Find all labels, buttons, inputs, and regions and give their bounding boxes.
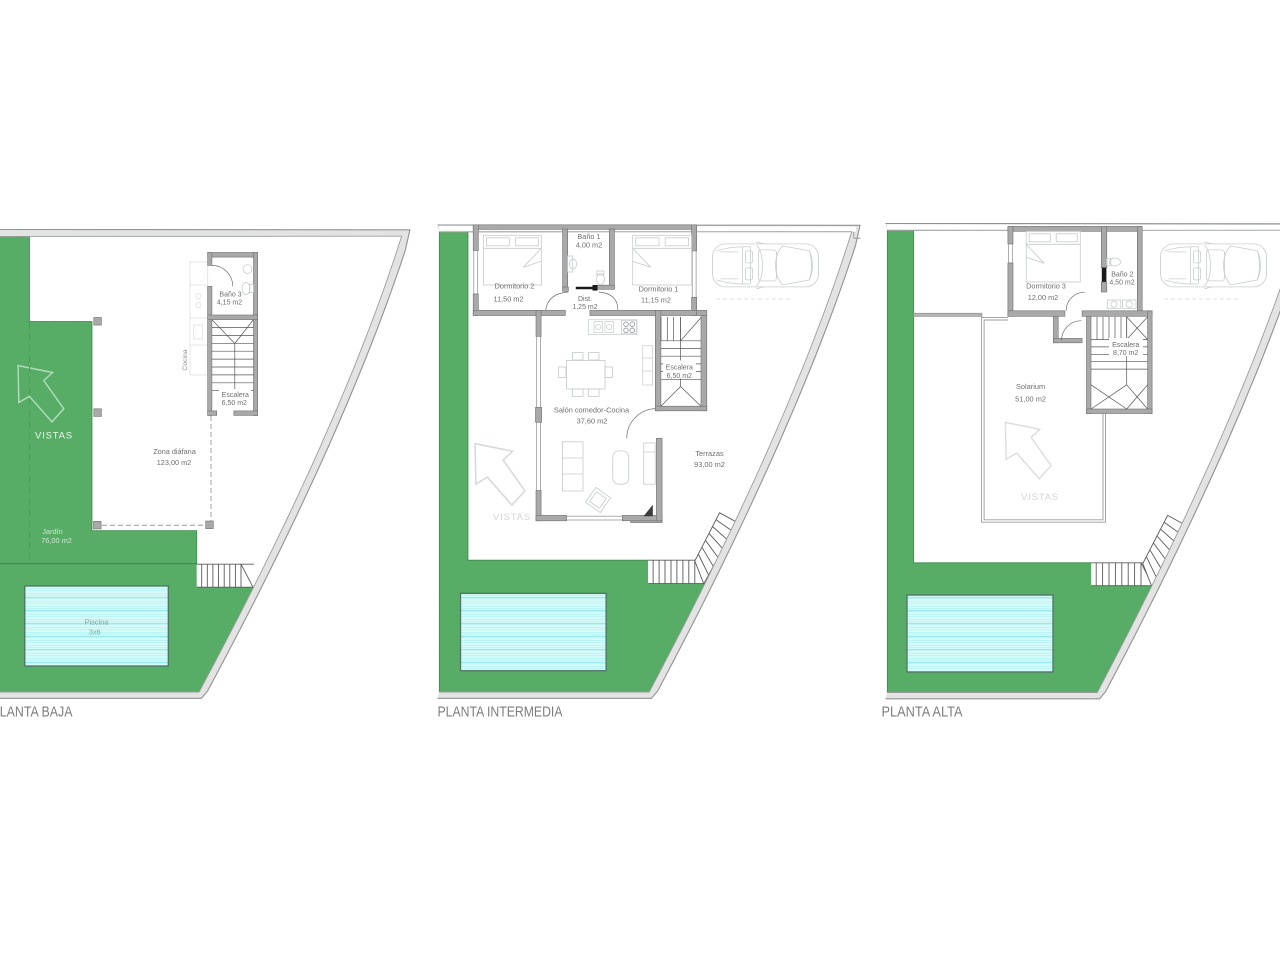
svg-text:37,60 m2: 37,60 m2 bbox=[577, 417, 608, 426]
svg-text:4,50 m2: 4,50 m2 bbox=[1109, 279, 1134, 286]
svg-text:Baño 1: Baño 1 bbox=[577, 232, 600, 241]
svg-text:Dormitorio 1: Dormitorio 1 bbox=[639, 285, 679, 294]
svg-text:11,50 m2: 11,50 m2 bbox=[494, 295, 524, 304]
svg-text:Piscina: Piscina bbox=[85, 618, 110, 627]
svg-text:6,50 m2: 6,50 m2 bbox=[667, 373, 692, 380]
svg-text:3x6: 3x6 bbox=[89, 627, 101, 636]
svg-text:123,00 m2: 123,00 m2 bbox=[157, 458, 191, 467]
svg-text:76,00 m2: 76,00 m2 bbox=[41, 536, 72, 545]
svg-text:Terrazas: Terrazas bbox=[695, 449, 724, 458]
svg-text:12,00 m2: 12,00 m2 bbox=[1028, 293, 1058, 302]
svg-text:8,70 m2: 8,70 m2 bbox=[1113, 350, 1138, 357]
svg-text:Jardín: Jardín bbox=[42, 527, 63, 536]
svg-text:VISTAS: VISTAS bbox=[1021, 492, 1059, 503]
svg-text:VISTAS: VISTAS bbox=[493, 512, 531, 523]
svg-text:Escalera: Escalera bbox=[1112, 342, 1139, 349]
svg-text:PLANTA ALTA: PLANTA ALTA bbox=[882, 704, 963, 721]
svg-text:Escalera: Escalera bbox=[666, 365, 693, 372]
svg-text:11,15 m2: 11,15 m2 bbox=[641, 296, 671, 305]
svg-text:4,15 m2: 4,15 m2 bbox=[217, 300, 242, 307]
svg-text:Cocina: Cocina bbox=[182, 349, 189, 370]
svg-text:Baño 2: Baño 2 bbox=[1111, 271, 1133, 278]
svg-text:Baño 3: Baño 3 bbox=[219, 291, 241, 298]
svg-text:Dormitorio 2: Dormitorio 2 bbox=[495, 282, 535, 291]
svg-text:1,25 m2: 1,25 m2 bbox=[572, 304, 597, 311]
svg-text:93,00 m2: 93,00 m2 bbox=[694, 460, 725, 469]
svg-text:Dormitorio 3: Dormitorio 3 bbox=[1026, 281, 1066, 290]
svg-text:Escalera: Escalera bbox=[222, 392, 249, 399]
svg-text:6,50 m2: 6,50 m2 bbox=[222, 400, 247, 407]
svg-text:PLANTA INTERMEDIA: PLANTA INTERMEDIA bbox=[438, 704, 563, 721]
svg-text:Solarium: Solarium bbox=[1016, 382, 1045, 391]
svg-text:PLANTA BAJA: PLANTA BAJA bbox=[0, 704, 73, 721]
svg-text:51,00 m2: 51,00 m2 bbox=[1015, 395, 1046, 404]
svg-text:VISTAS: VISTAS bbox=[35, 431, 73, 442]
svg-text:4,00 m2: 4,00 m2 bbox=[576, 241, 602, 250]
svg-text:Dist.: Dist. bbox=[578, 296, 592, 303]
svg-text:Salón comedor-Cocina: Salón comedor-Cocina bbox=[554, 406, 630, 415]
svg-text:Zona diáfana: Zona diáfana bbox=[153, 447, 197, 456]
